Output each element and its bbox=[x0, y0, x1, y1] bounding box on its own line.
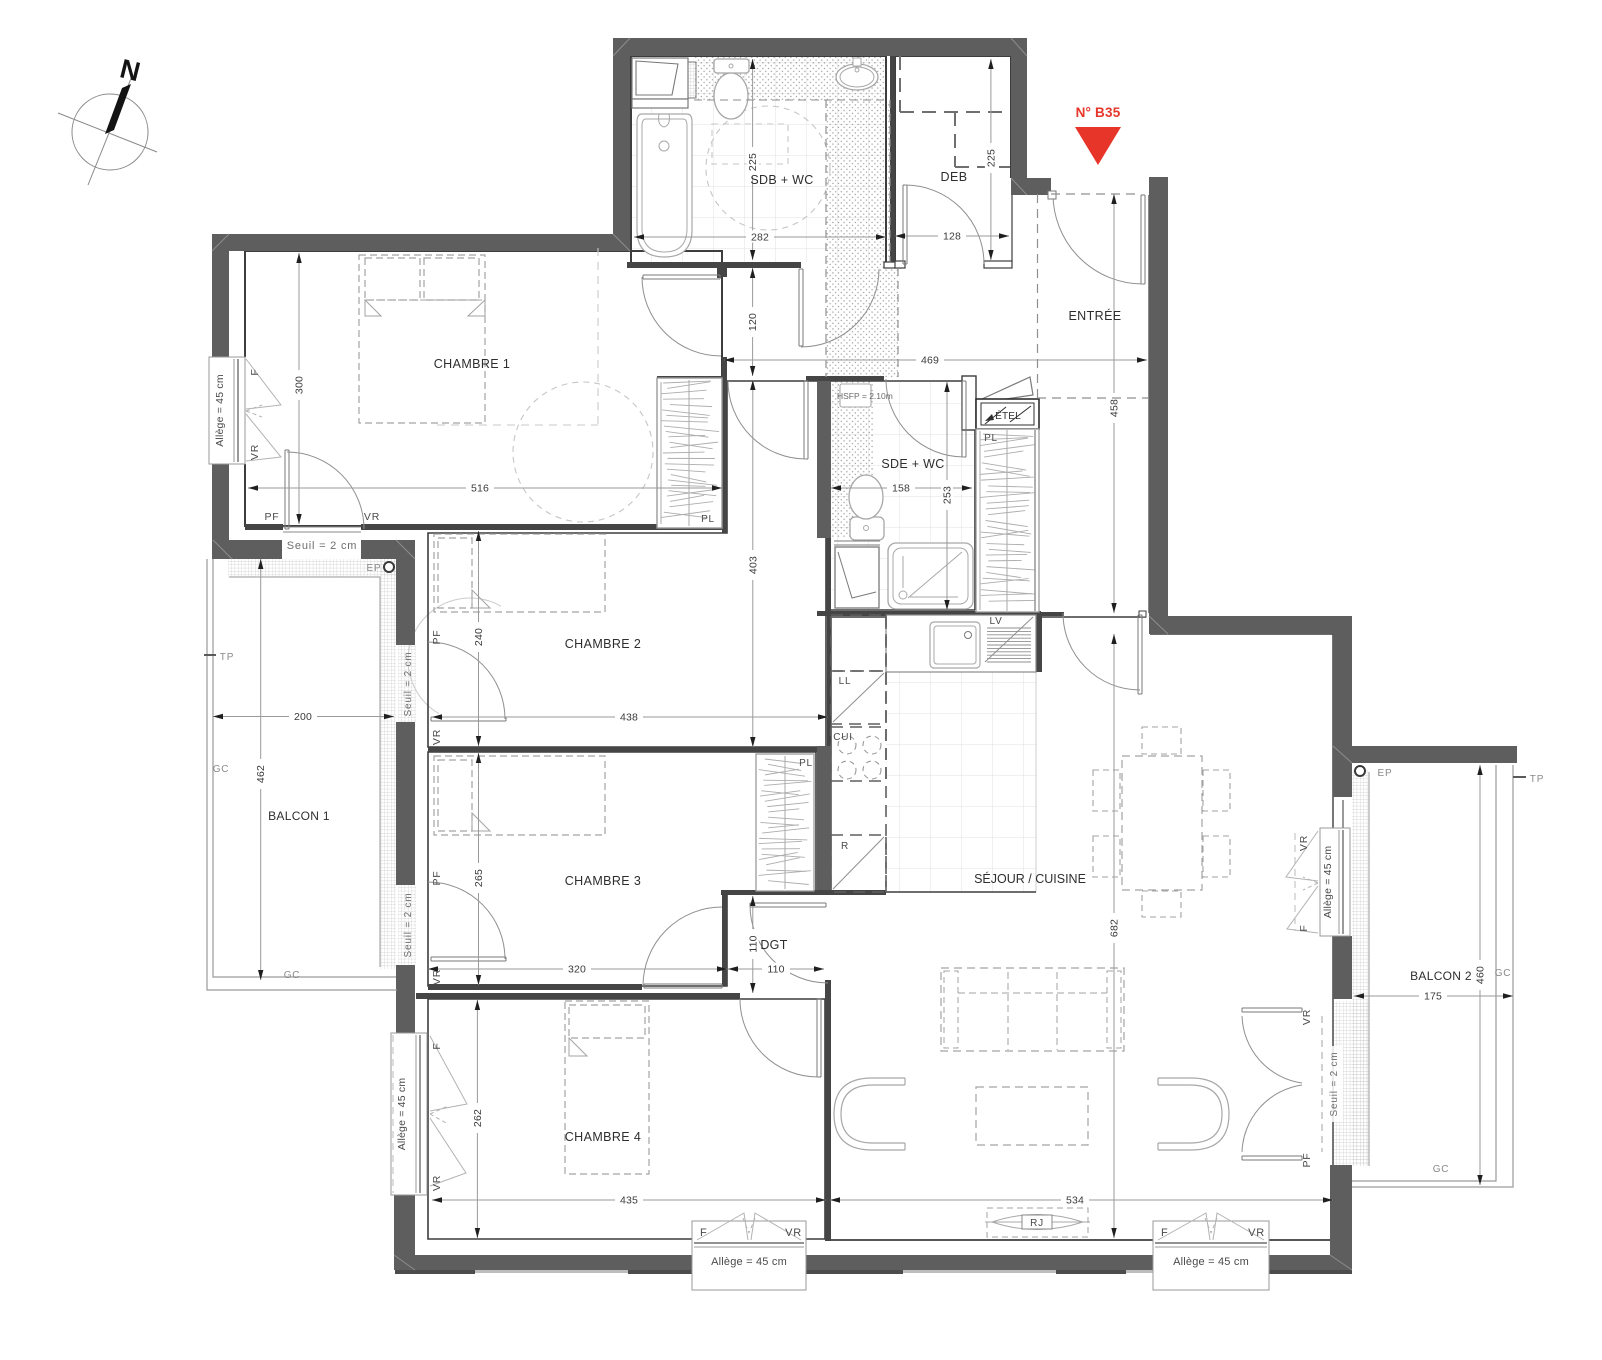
svg-text:403: 403 bbox=[747, 556, 759, 574]
svg-text:462: 462 bbox=[255, 765, 267, 783]
svg-text:GC: GC bbox=[213, 764, 230, 775]
svg-text:PL: PL bbox=[799, 758, 813, 769]
svg-text:VR: VR bbox=[785, 1227, 802, 1239]
svg-text:PF: PF bbox=[264, 511, 279, 523]
svg-text:DGT: DGT bbox=[760, 938, 787, 952]
svg-text:225: 225 bbox=[985, 149, 997, 167]
svg-text:SÉJOUR / CUISINE: SÉJOUR / CUISINE bbox=[974, 871, 1086, 886]
svg-text:Seuil = 2 cm: Seuil = 2 cm bbox=[403, 893, 414, 958]
svg-text:PF: PF bbox=[1301, 1152, 1313, 1167]
svg-text:LV: LV bbox=[989, 616, 1002, 627]
svg-text:PF: PF bbox=[431, 870, 443, 885]
svg-text:R: R bbox=[841, 841, 849, 852]
svg-text:158: 158 bbox=[892, 483, 910, 495]
svg-text:GC: GC bbox=[284, 970, 301, 981]
svg-text:ENTRÉE: ENTRÉE bbox=[1068, 308, 1121, 323]
svg-text:VR: VR bbox=[249, 444, 261, 460]
svg-text:GC: GC bbox=[1433, 1164, 1450, 1175]
svg-text:469: 469 bbox=[921, 355, 939, 367]
svg-text:438: 438 bbox=[620, 712, 638, 724]
svg-text:200: 200 bbox=[294, 711, 312, 723]
svg-text:PF: PF bbox=[431, 629, 443, 644]
svg-text:225: 225 bbox=[747, 153, 759, 171]
svg-text:175: 175 bbox=[1424, 991, 1442, 1003]
svg-text:ÉTEL: ÉTEL bbox=[995, 409, 1021, 422]
svg-text:435: 435 bbox=[620, 1195, 638, 1207]
svg-text:VR: VR bbox=[1248, 1227, 1265, 1239]
svg-text:110: 110 bbox=[767, 964, 784, 976]
svg-text:F: F bbox=[249, 368, 261, 375]
svg-text:682: 682 bbox=[1109, 919, 1121, 937]
svg-text:GC: GC bbox=[1495, 968, 1512, 979]
svg-text:120: 120 bbox=[747, 313, 759, 331]
svg-text:265: 265 bbox=[473, 869, 485, 887]
svg-text:EP: EP bbox=[367, 563, 382, 574]
svg-text:282: 282 bbox=[751, 232, 769, 244]
svg-text:Seuil = 2 cm: Seuil = 2 cm bbox=[1329, 1052, 1340, 1117]
svg-text:320: 320 bbox=[568, 964, 586, 976]
svg-text:N° B35: N° B35 bbox=[1076, 105, 1121, 120]
svg-text:300: 300 bbox=[294, 376, 306, 394]
svg-text:CUI: CUI bbox=[833, 732, 853, 743]
svg-text:F: F bbox=[1298, 924, 1310, 931]
svg-text:240: 240 bbox=[473, 628, 485, 646]
svg-text:F: F bbox=[700, 1227, 708, 1239]
svg-text:EP: EP bbox=[1378, 768, 1393, 779]
svg-text:DEB: DEB bbox=[941, 170, 968, 184]
svg-text:Allège = 45 cm: Allège = 45 cm bbox=[1173, 1256, 1249, 1268]
svg-text:516: 516 bbox=[471, 483, 489, 495]
svg-text:534: 534 bbox=[1066, 1195, 1084, 1207]
svg-text:PL: PL bbox=[701, 514, 715, 525]
svg-text:BALCON 2: BALCON 2 bbox=[1410, 969, 1472, 983]
svg-text:Seuil = 2 cm: Seuil = 2 cm bbox=[403, 652, 414, 717]
svg-text:CHAMBRE 1: CHAMBRE 1 bbox=[434, 357, 511, 371]
svg-text:VR: VR bbox=[431, 729, 443, 745]
svg-text:TP: TP bbox=[220, 652, 234, 663]
svg-text:F: F bbox=[431, 1042, 443, 1049]
svg-text:Allège = 45 cm: Allège = 45 cm bbox=[1322, 846, 1334, 919]
svg-text:CHAMBRE 2: CHAMBRE 2 bbox=[565, 637, 642, 651]
svg-text:460: 460 bbox=[1475, 966, 1487, 984]
svg-text:CHAMBRE 3: CHAMBRE 3 bbox=[565, 874, 642, 888]
svg-text:SDE + WC: SDE + WC bbox=[881, 457, 944, 471]
svg-text:Seuil = 2 cm: Seuil = 2 cm bbox=[287, 540, 357, 552]
svg-text:VR: VR bbox=[364, 511, 380, 523]
svg-text:458: 458 bbox=[1109, 399, 1121, 417]
svg-text:VR: VR bbox=[1301, 1009, 1313, 1025]
svg-text:SDB + WC: SDB + WC bbox=[750, 173, 813, 187]
svg-text:CHAMBRE 4: CHAMBRE 4 bbox=[565, 1130, 642, 1144]
svg-text:VR: VR bbox=[431, 1175, 443, 1191]
svg-text:253: 253 bbox=[942, 486, 954, 504]
svg-text:Allège = 45 cm: Allège = 45 cm bbox=[214, 374, 226, 447]
svg-text:LL: LL bbox=[839, 676, 852, 687]
svg-text:110: 110 bbox=[747, 935, 759, 952]
svg-text:Allège = 45 cm: Allège = 45 cm bbox=[396, 1078, 408, 1151]
svg-text:RJ: RJ bbox=[1030, 1218, 1044, 1229]
svg-text:HSFP = 2.10m: HSFP = 2.10m bbox=[837, 391, 893, 401]
svg-text:262: 262 bbox=[472, 1109, 484, 1127]
svg-text:VR: VR bbox=[1298, 835, 1310, 851]
svg-text:TP: TP bbox=[1530, 774, 1544, 785]
svg-text:PL: PL bbox=[984, 433, 998, 444]
svg-text:Allège = 45 cm: Allège = 45 cm bbox=[711, 1256, 787, 1268]
svg-text:F: F bbox=[1161, 1227, 1169, 1239]
svg-text:BALCON 1: BALCON 1 bbox=[268, 809, 330, 823]
svg-text:128: 128 bbox=[943, 231, 961, 243]
